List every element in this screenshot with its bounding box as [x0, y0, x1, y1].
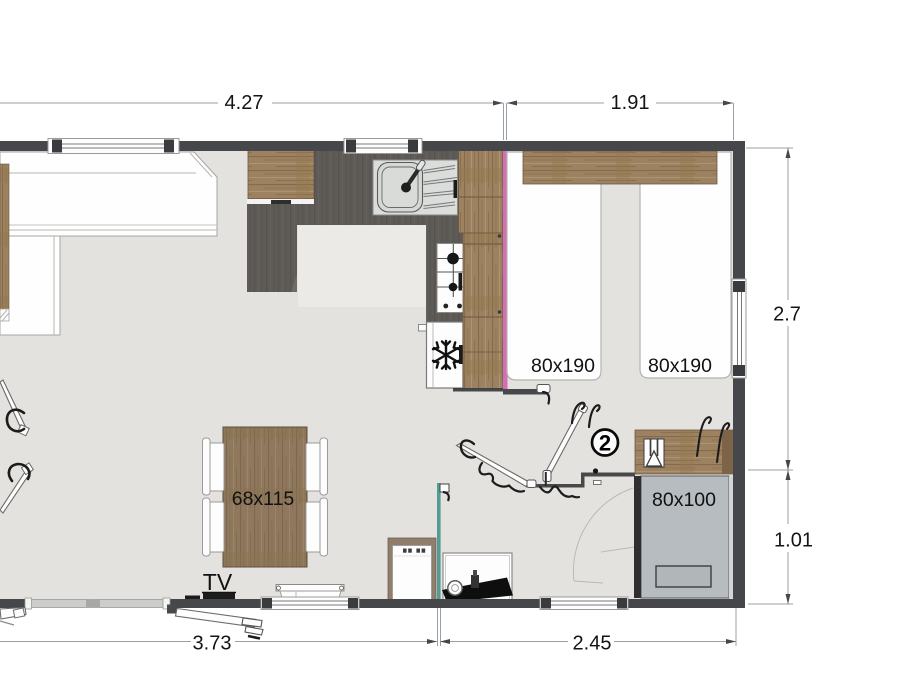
svg-text:68x115: 68x115 — [232, 488, 295, 510]
svg-text:1.91: 1.91 — [611, 92, 650, 114]
svg-text:80x100: 80x100 — [652, 489, 716, 511]
svg-text:80x190: 80x190 — [648, 355, 712, 377]
svg-text:3.73: 3.73 — [193, 633, 232, 655]
svg-text:4.27: 4.27 — [225, 92, 264, 114]
svg-text:2.45: 2.45 — [573, 633, 612, 655]
svg-text:1.01: 1.01 — [774, 530, 813, 552]
svg-text:TV: TV — [203, 569, 233, 595]
svg-text:2.7: 2.7 — [773, 304, 801, 326]
svg-text:2: 2 — [599, 431, 611, 456]
svg-text:80x190: 80x190 — [531, 355, 595, 377]
